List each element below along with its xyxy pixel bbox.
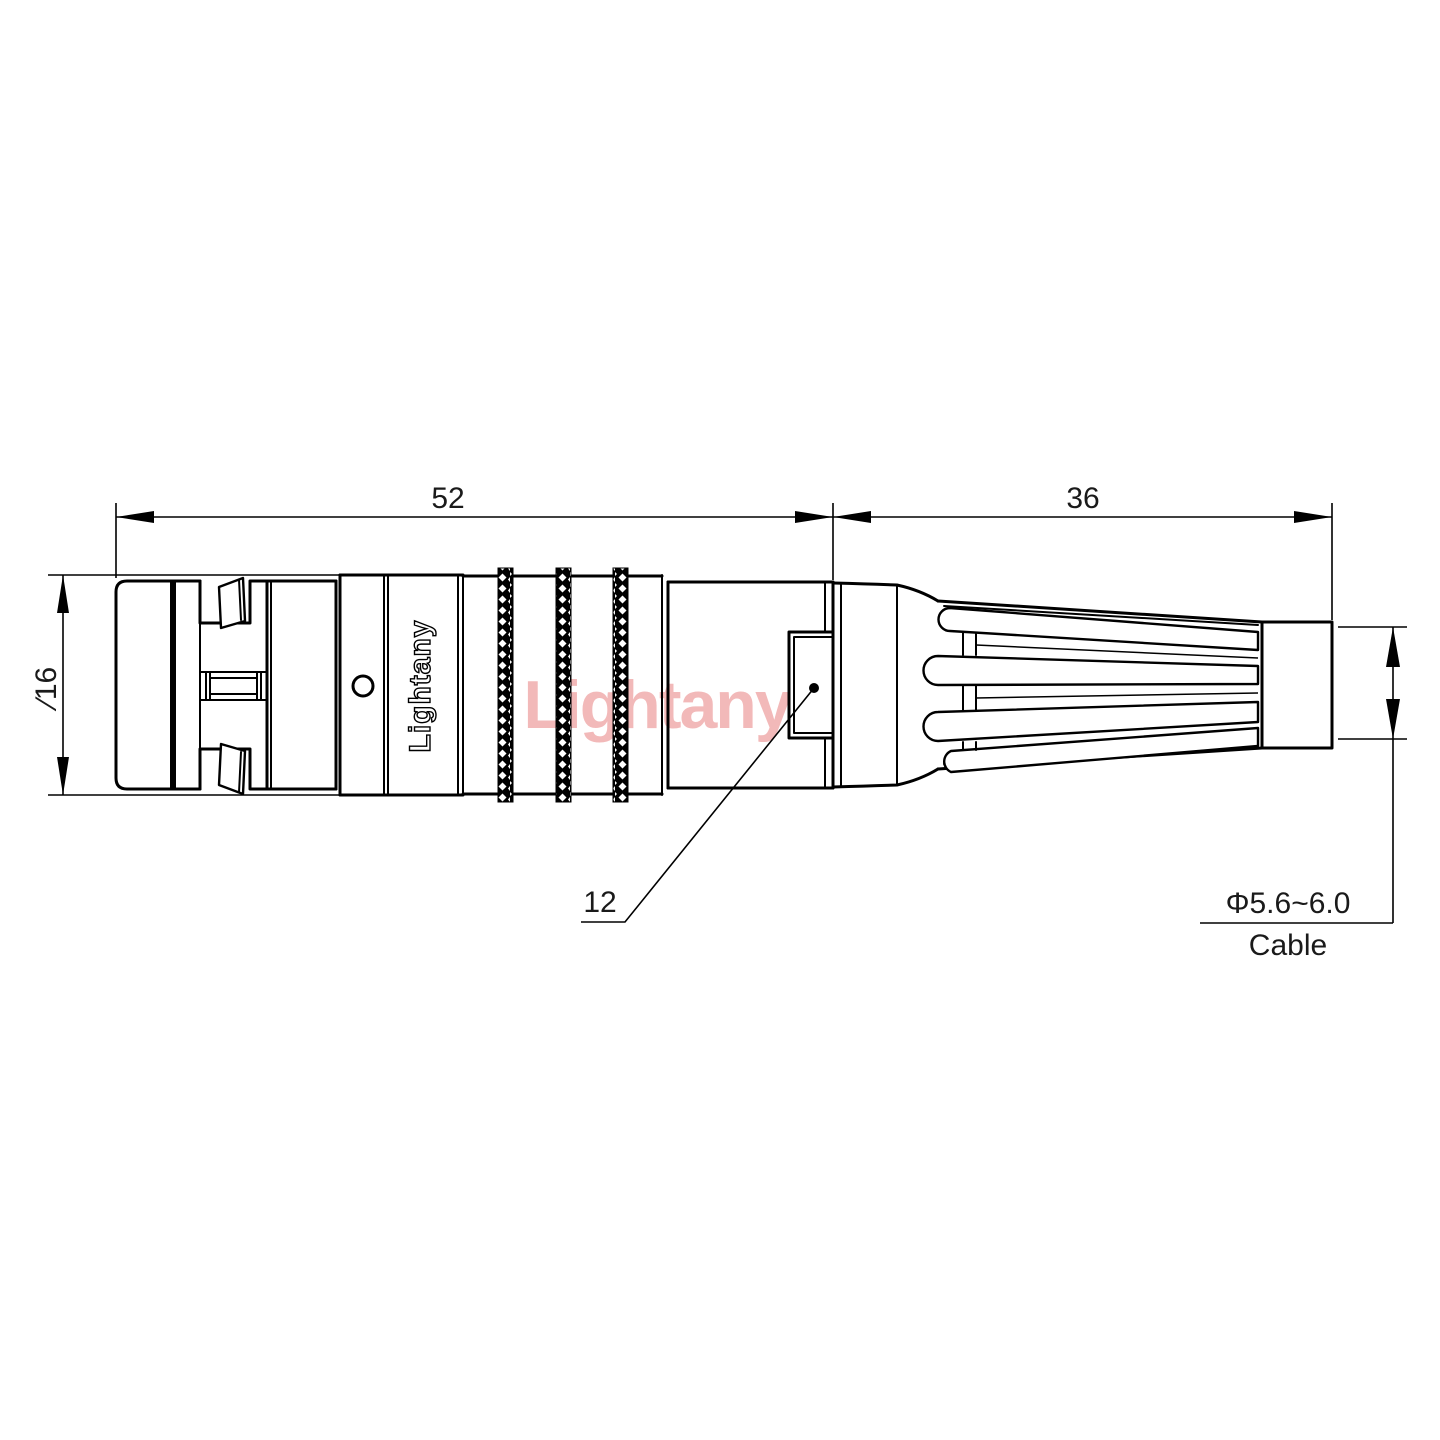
connector-technical-drawing: Lightany [0, 0, 1440, 1440]
dim-label-dia16: ∕16 [30, 667, 63, 712]
front-seam-band [170, 581, 176, 789]
dim-label-12: 12 [583, 886, 616, 919]
dim-label-36: 36 [1066, 482, 1099, 515]
latch-tab-bottom [219, 744, 245, 794]
brand-engraving: Lightany [404, 620, 437, 753]
dim-label-cable-dia: Φ5.6~6.0 [1226, 887, 1351, 920]
dim-label-cable-word: Cable [1249, 929, 1327, 962]
cable-exit-stub [1262, 622, 1332, 748]
knurl-band [556, 568, 571, 802]
knurl-band [613, 568, 628, 802]
knurl-band [498, 568, 513, 802]
main-barrel: Lightany [340, 568, 662, 802]
leader-dot-icon [809, 683, 819, 693]
dim-label-52: 52 [431, 482, 464, 515]
latch-tab-top [219, 578, 245, 628]
drawing-canvas: Lightany [0, 0, 1440, 1440]
